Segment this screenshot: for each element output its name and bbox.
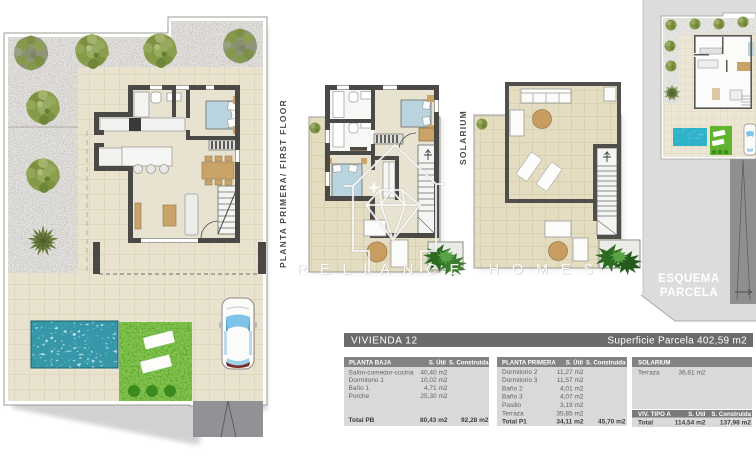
svg-text:S. Útil: S. Útil bbox=[566, 360, 584, 367]
svg-text:80,43 m2: 80,43 m2 bbox=[420, 417, 448, 424]
svg-text:11,57 m2: 11,57 m2 bbox=[557, 377, 584, 384]
svg-text:S. Útil: S. Útil bbox=[429, 360, 447, 367]
svg-text:SOLARIUM: SOLARIUM bbox=[638, 360, 671, 367]
svg-text:S. Construida: S. Construida bbox=[586, 360, 626, 367]
svg-text:Pasillo: Pasillo bbox=[502, 402, 522, 409]
svg-text:Baño 3: Baño 3 bbox=[502, 394, 523, 401]
svg-text:40,40 m2: 40,40 m2 bbox=[420, 369, 447, 376]
svg-text:Terraza: Terraza bbox=[638, 369, 660, 376]
svg-text:PARCELA: PARCELA bbox=[660, 287, 718, 299]
svg-text:SOLARIUM: SOLARIUM bbox=[458, 110, 468, 165]
svg-text:4,01 m2: 4,01 m2 bbox=[560, 385, 584, 392]
svg-text:36,61 m2: 36,61 m2 bbox=[678, 369, 705, 376]
svg-text:Dormitorio 1: Dormitorio 1 bbox=[349, 377, 385, 384]
svg-text:Total PB: Total PB bbox=[349, 417, 375, 424]
svg-text:10,02 m2: 10,02 m2 bbox=[420, 377, 447, 384]
svg-text:VIV. TIPO A: VIV. TIPO A bbox=[638, 411, 671, 418]
svg-text:RELIANCE HOMES: RELIANCE HOMES bbox=[297, 262, 606, 278]
svg-text:137,98 m2: 137,98 m2 bbox=[720, 420, 751, 427]
svg-text:S. Construida: S. Construida bbox=[449, 360, 489, 367]
svg-text:4,07 m2: 4,07 m2 bbox=[560, 394, 584, 401]
svg-text:Dormitorio 3: Dormitorio 3 bbox=[502, 377, 538, 384]
svg-text:Dormitorio 2: Dormitorio 2 bbox=[502, 369, 538, 376]
svg-text:Baño 2: Baño 2 bbox=[502, 385, 523, 392]
svg-text:45,70 m2: 45,70 m2 bbox=[598, 419, 626, 426]
svg-text:35,85 m2: 35,85 m2 bbox=[556, 410, 583, 417]
svg-text:ESQUEMA: ESQUEMA bbox=[658, 273, 720, 285]
svg-text:Salón-comedor-cocina: Salón-comedor-cocina bbox=[349, 369, 414, 376]
svg-text:S. Construida: S. Construida bbox=[711, 411, 751, 418]
svg-text:3,19 m2: 3,19 m2 bbox=[560, 402, 584, 409]
svg-text:Total P1: Total P1 bbox=[502, 419, 527, 426]
svg-text:Superficie Parcela 402,59 m2: Superficie Parcela 402,59 m2 bbox=[607, 336, 747, 347]
svg-text:Baño 1: Baño 1 bbox=[349, 385, 370, 392]
svg-text:Terraza: Terraza bbox=[502, 410, 524, 417]
svg-text:92,28 m2: 92,28 m2 bbox=[461, 417, 489, 424]
svg-text:34,11 m2: 34,11 m2 bbox=[556, 419, 583, 426]
svg-text:Total: Total bbox=[638, 420, 653, 427]
svg-text:S. Útil: S. Útil bbox=[688, 411, 706, 418]
svg-text:PLANTA BAJA: PLANTA BAJA bbox=[349, 360, 392, 367]
svg-text:PLANTA PRIMERA/ FIRST FLOOR: PLANTA PRIMERA/ FIRST FLOOR bbox=[278, 99, 288, 268]
svg-text:Porche: Porche bbox=[349, 393, 370, 400]
svg-text:114,54 m2: 114,54 m2 bbox=[675, 420, 706, 427]
svg-text:25,30 m2: 25,30 m2 bbox=[420, 393, 447, 400]
svg-text:VIVIENDA 12: VIVIENDA 12 bbox=[351, 336, 418, 347]
svg-text:PLANTA PRIMERA: PLANTA PRIMERA bbox=[502, 360, 556, 367]
svg-text:11,27 m2: 11,27 m2 bbox=[557, 369, 584, 376]
svg-text:4,71 m2: 4,71 m2 bbox=[424, 385, 448, 392]
